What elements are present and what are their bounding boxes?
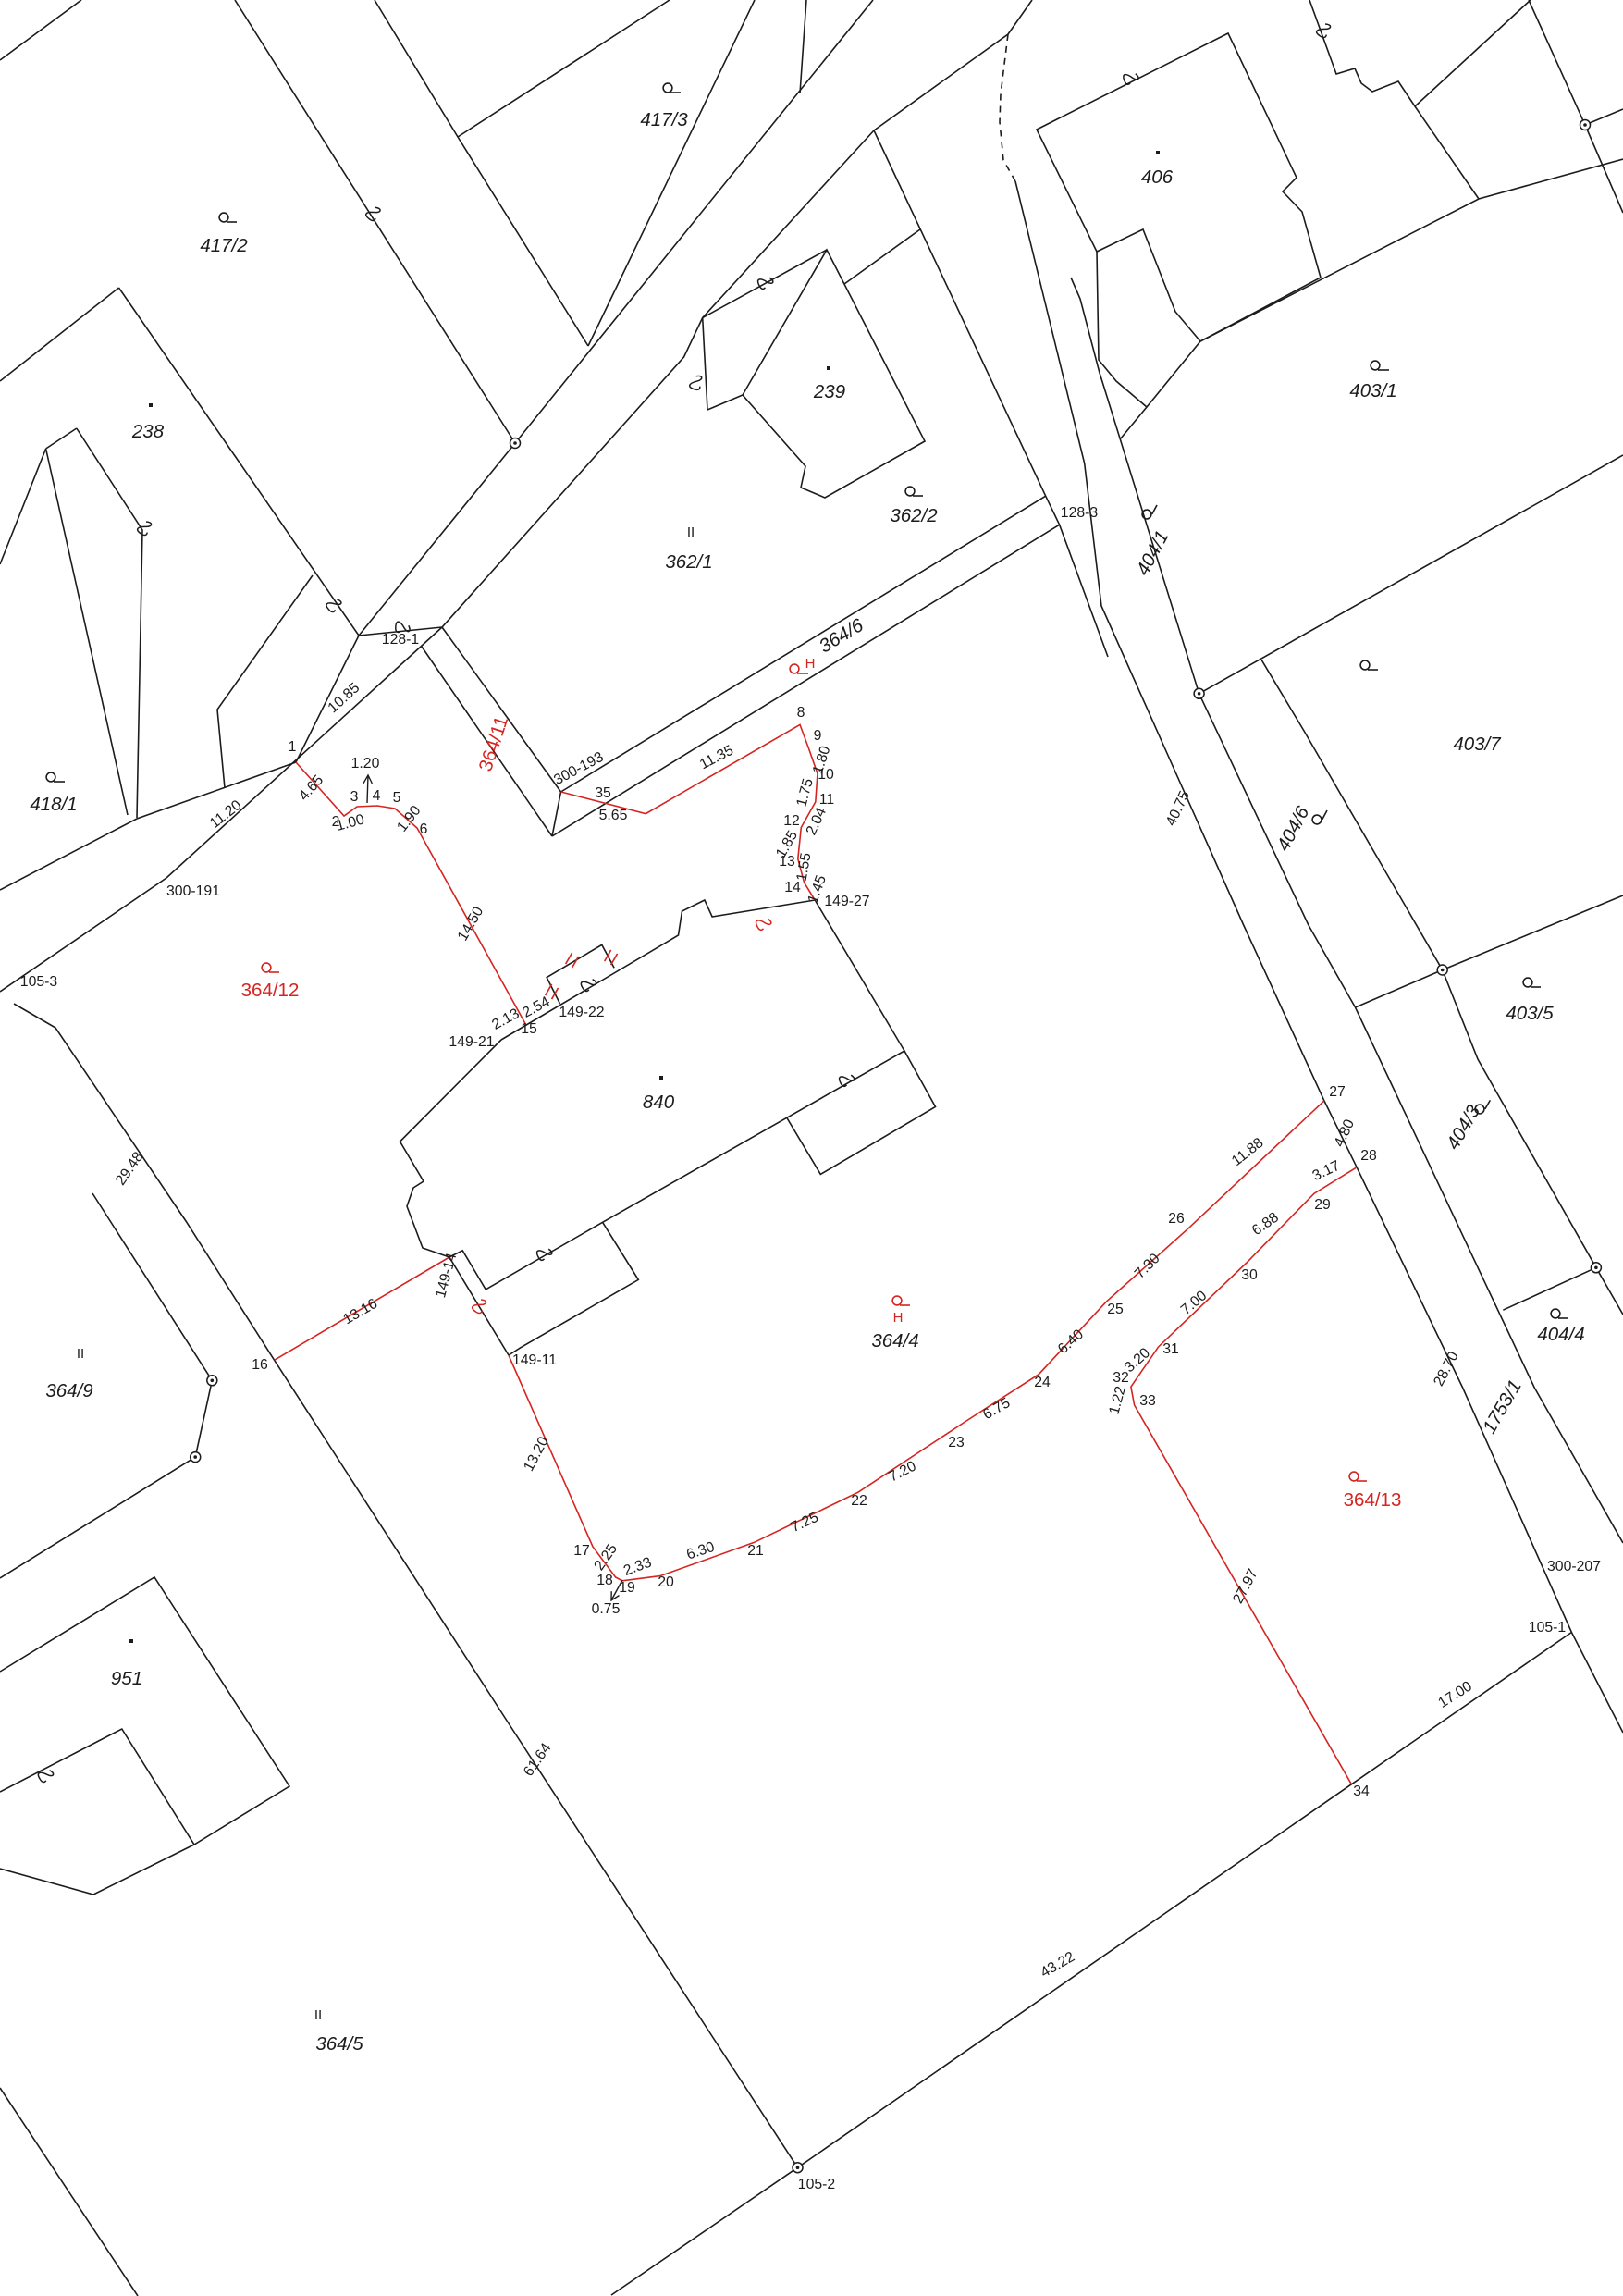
svg-text:239: 239 <box>813 381 845 402</box>
svg-text:25: 25 <box>1107 1302 1124 1317</box>
svg-text:5: 5 <box>393 790 401 806</box>
svg-text:840: 840 <box>643 1092 675 1113</box>
svg-text:18: 18 <box>596 1573 613 1588</box>
svg-text:404/4: 404/4 <box>1537 1324 1584 1345</box>
svg-text:10: 10 <box>818 767 834 783</box>
svg-text:362/1: 362/1 <box>665 551 712 573</box>
svg-text:128-3: 128-3 <box>1061 505 1099 521</box>
svg-text:403/1: 403/1 <box>1349 380 1396 401</box>
svg-text:20: 20 <box>658 1574 674 1590</box>
svg-text:4: 4 <box>373 788 381 804</box>
svg-text:34: 34 <box>1353 1784 1370 1799</box>
svg-text:364/12: 364/12 <box>241 980 300 1001</box>
svg-text:238: 238 <box>131 421 165 442</box>
svg-text:149-11: 149-11 <box>512 1352 557 1368</box>
svg-text:26: 26 <box>1168 1211 1185 1227</box>
svg-text:35: 35 <box>595 785 611 801</box>
svg-text:30: 30 <box>1241 1267 1258 1283</box>
svg-text:II: II <box>314 2007 322 2023</box>
svg-text:406: 406 <box>1141 167 1174 188</box>
svg-text:15: 15 <box>521 1021 537 1037</box>
svg-text:105-2: 105-2 <box>798 2177 835 2192</box>
svg-text:6: 6 <box>420 821 428 837</box>
svg-text:417/2: 417/2 <box>200 235 248 256</box>
svg-text:14: 14 <box>784 880 801 895</box>
svg-text:H: H <box>805 656 816 672</box>
svg-text:0.75: 0.75 <box>592 1601 621 1617</box>
svg-text:951: 951 <box>111 1668 142 1689</box>
svg-text:29: 29 <box>1314 1197 1331 1213</box>
svg-text:16: 16 <box>252 1357 268 1373</box>
svg-text:364/5: 364/5 <box>315 2033 363 2055</box>
svg-text:300-207: 300-207 <box>1547 1559 1601 1574</box>
svg-text:21: 21 <box>747 1543 764 1559</box>
svg-text:300-191: 300-191 <box>166 883 220 899</box>
svg-text:32: 32 <box>1113 1370 1129 1386</box>
svg-text:149-27: 149-27 <box>824 894 869 909</box>
svg-text:22: 22 <box>851 1493 867 1509</box>
svg-text:1.20: 1.20 <box>351 756 380 772</box>
svg-text:128-1: 128-1 <box>382 632 420 648</box>
svg-text:105-1: 105-1 <box>1529 1620 1567 1636</box>
svg-text:403/7: 403/7 <box>1453 734 1502 755</box>
svg-text:11: 11 <box>819 792 835 808</box>
svg-text:3: 3 <box>350 789 359 805</box>
svg-text:364/13: 364/13 <box>1344 1489 1402 1511</box>
svg-text:H: H <box>893 1310 904 1326</box>
svg-text:364/9: 364/9 <box>45 1380 92 1401</box>
svg-text:403/5: 403/5 <box>1506 1003 1554 1024</box>
svg-text:8: 8 <box>797 705 805 721</box>
svg-text:17: 17 <box>573 1543 590 1559</box>
svg-text:31: 31 <box>1162 1341 1179 1357</box>
svg-text:23: 23 <box>948 1435 965 1450</box>
svg-text:28: 28 <box>1360 1148 1377 1164</box>
svg-text:27: 27 <box>1329 1084 1346 1100</box>
svg-text:9: 9 <box>814 728 822 744</box>
svg-text:362/2: 362/2 <box>890 505 938 526</box>
svg-text:364/4: 364/4 <box>871 1330 918 1352</box>
svg-text:13: 13 <box>779 854 795 870</box>
svg-text:418/1: 418/1 <box>30 794 77 815</box>
svg-text:II: II <box>77 1346 84 1362</box>
svg-text:5.65: 5.65 <box>599 808 628 823</box>
svg-text:105-3: 105-3 <box>20 974 58 990</box>
svg-text:24: 24 <box>1034 1375 1051 1390</box>
svg-text:149-22: 149-22 <box>559 1005 604 1020</box>
svg-text:12: 12 <box>783 813 800 829</box>
svg-text:33: 33 <box>1139 1393 1156 1409</box>
svg-text:II: II <box>687 525 695 540</box>
svg-text:19: 19 <box>619 1580 635 1596</box>
svg-text:149-21: 149-21 <box>449 1034 494 1050</box>
svg-text:417/3: 417/3 <box>640 109 688 130</box>
svg-text:1: 1 <box>289 739 297 755</box>
